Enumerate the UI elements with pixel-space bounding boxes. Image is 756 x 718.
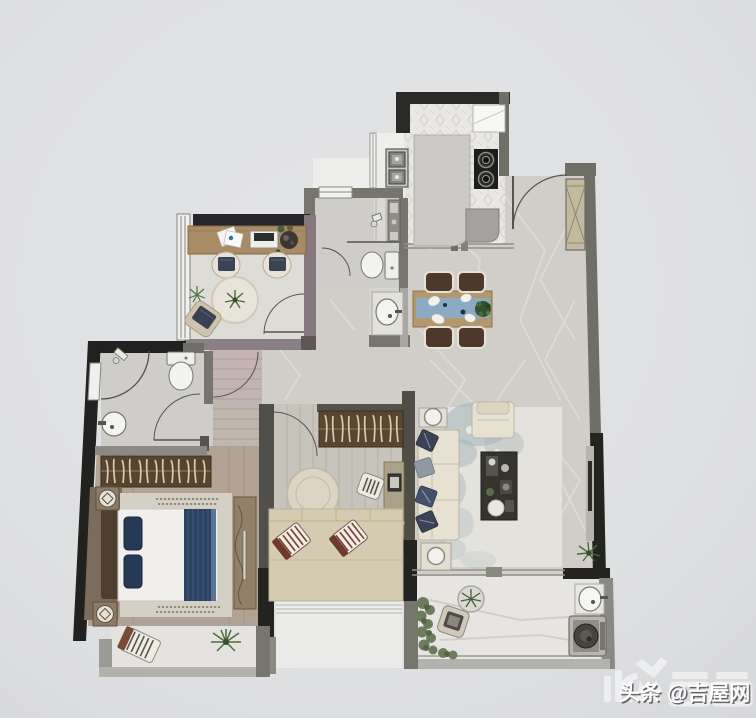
svg-text:头条 @吉屋网: 头条 @吉屋网 — [619, 681, 750, 705]
